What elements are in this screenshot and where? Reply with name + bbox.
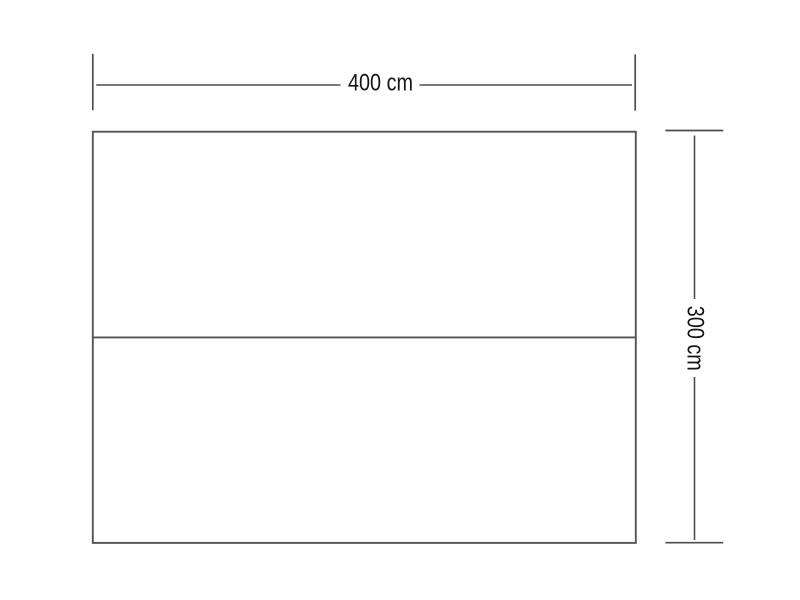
svg-text:300 cm: 300 cm <box>682 306 709 371</box>
svg-text:400 cm: 400 cm <box>348 69 413 96</box>
